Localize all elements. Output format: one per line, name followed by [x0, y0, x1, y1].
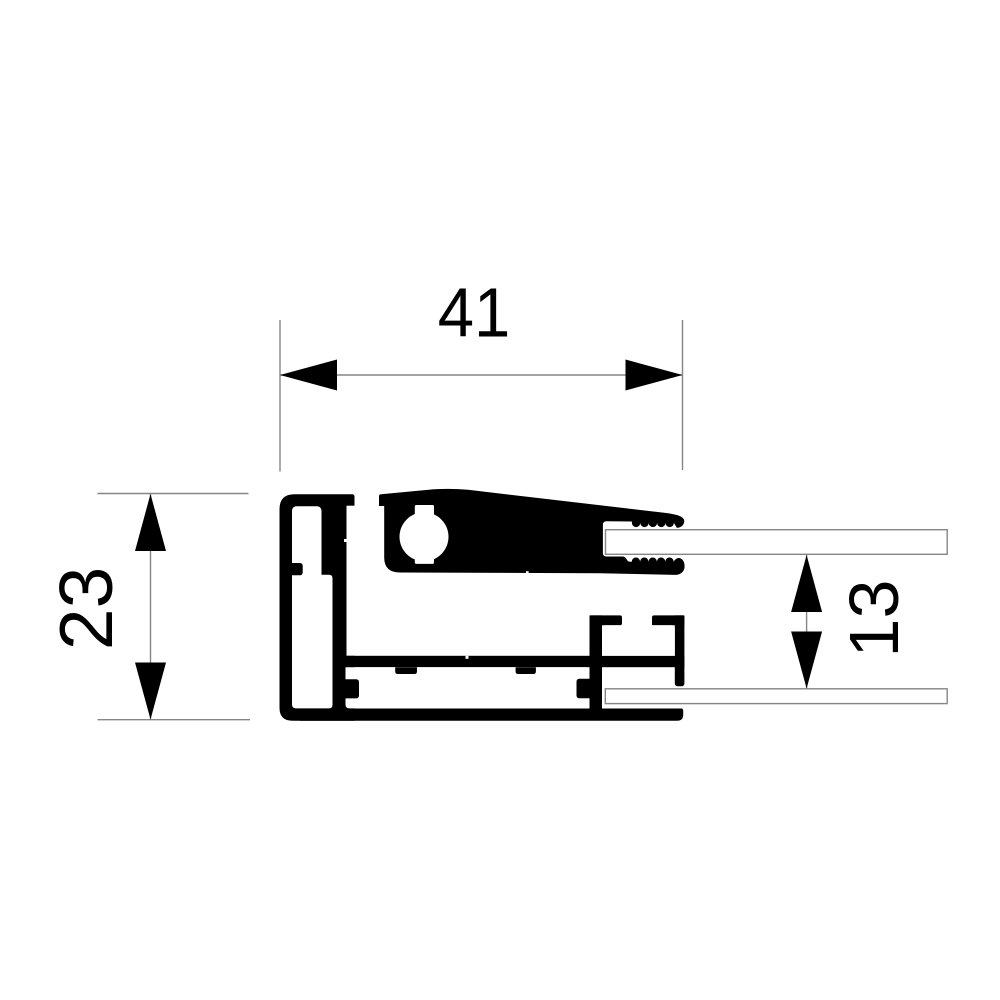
svg-text:23: 23: [44, 567, 128, 650]
svg-text:13: 13: [835, 580, 913, 658]
svg-text:41: 41: [438, 274, 511, 352]
